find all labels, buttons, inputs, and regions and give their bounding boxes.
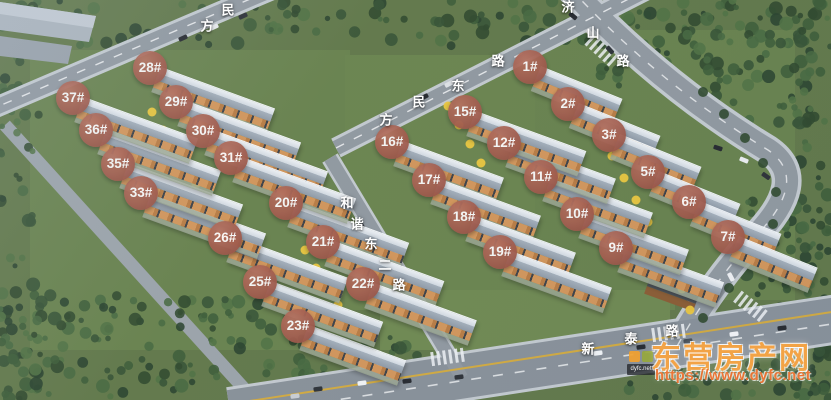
road-label-char-xintai-road: 泰 [624,329,637,348]
road-label-char-hexie-east-2nd-road: 和 [340,193,353,212]
road-label-char-fangmin-east-road: 方 [379,110,392,129]
road-label-char-jishan-road: 山 [586,23,599,42]
road-label-char-fangmin-east-road: 民 [412,92,425,111]
road-label-char-fangmin-east-road: 路 [491,51,504,70]
aerial-site-plan: 1#2#3#5#6#7#9#10#11#12#15#16#17#18#19#20… [0,0,831,400]
road-label-char-jishan-road: 济 [561,0,574,16]
road-label-char-hexie-east-2nd-road: 路 [392,275,405,294]
road-label-char-fangmin-east-road: 东 [451,76,464,95]
road-label-char-hexie-east-2nd-road: 二 [378,255,391,274]
road-label-char-xintai-road: 新 [581,339,594,358]
road-label-char-jishan-road: 路 [616,51,629,70]
road-label-char-hexie-east-2nd-road: 谐 [350,214,363,233]
road-label-char-hexie-east-2nd-road: 东 [364,234,377,253]
road-label-char-fangmin-east-road-upper: 民 [221,0,234,19]
road-label-char-fangmin-east-road-upper: 方 [200,16,213,35]
road-labels-layer: 方民方民东路济山路和谐东二路新泰路 [0,0,831,400]
road-label-char-xintai-road: 路 [665,321,678,340]
